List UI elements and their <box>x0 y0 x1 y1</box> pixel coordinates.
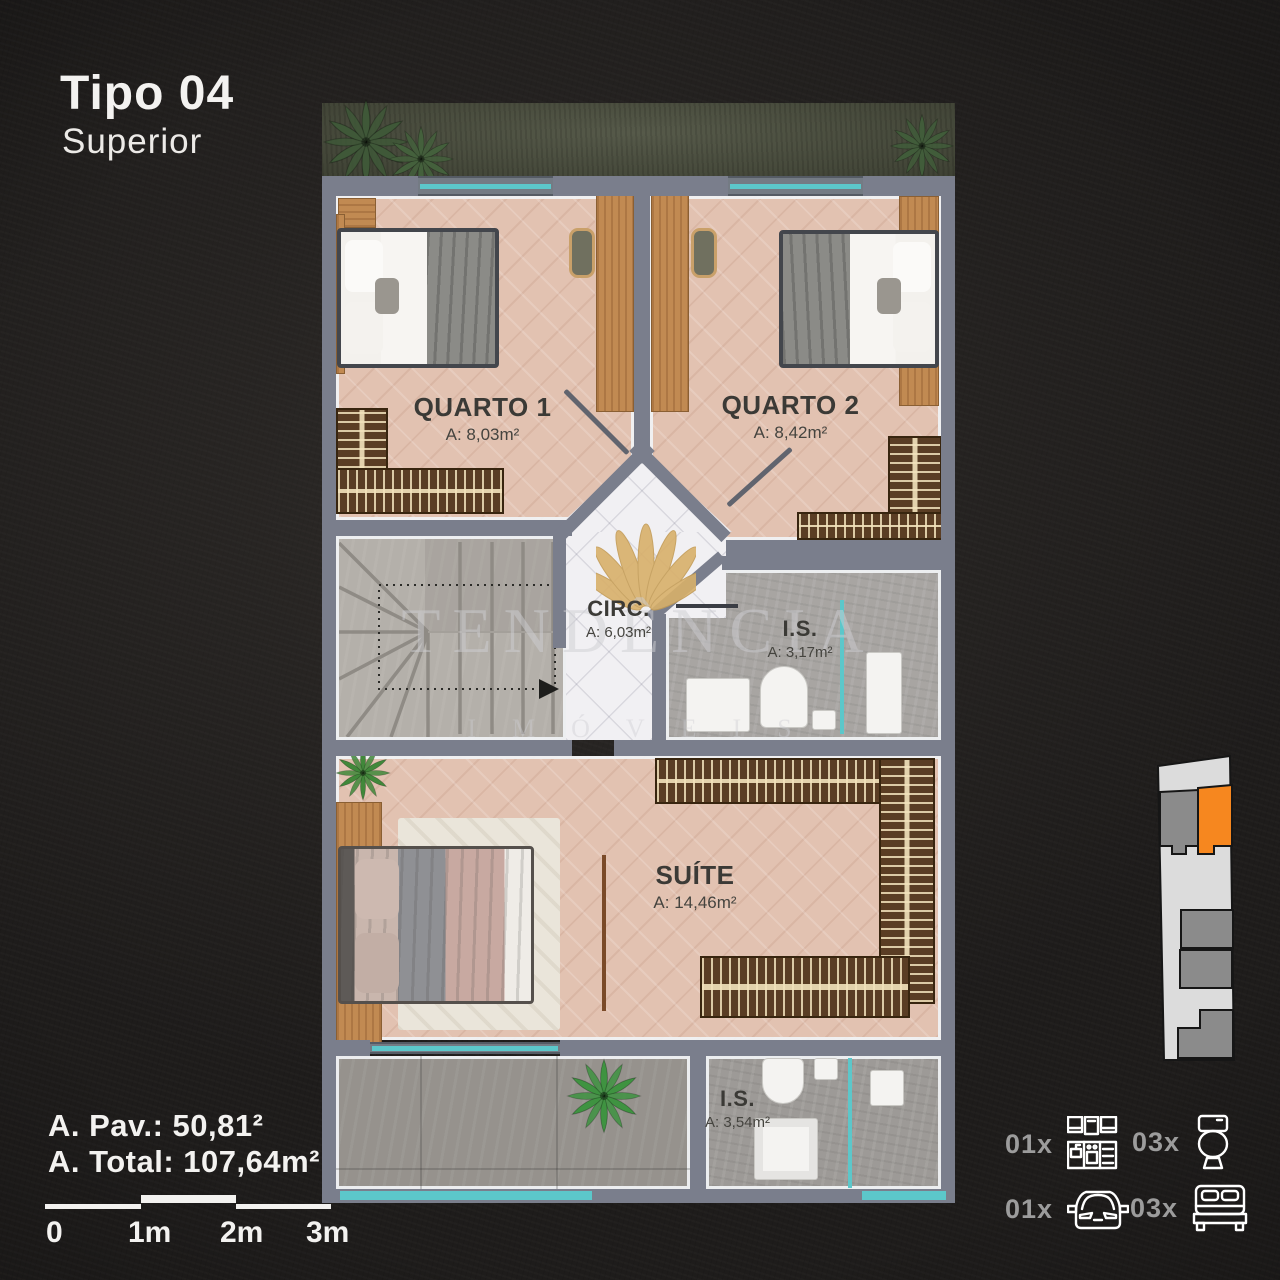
key-plan-unit <box>1160 790 1198 854</box>
room-label-suite: SUÍTE A: 14,46m² <box>620 860 770 913</box>
scale-label-1m: 1m <box>128 1216 171 1250</box>
key-plan-highlighted-unit <box>1198 785 1232 854</box>
page-subtitle: Superior <box>62 122 202 162</box>
balcony-tile-joint <box>556 1056 558 1189</box>
pouf-quarto2 <box>691 228 717 278</box>
bed-quarto2 <box>779 230 939 368</box>
room-name: I.S. <box>675 1086 800 1112</box>
legend-item-kitchen: 01x <box>1005 1116 1119 1172</box>
legend-item-car: 01x <box>1005 1186 1129 1232</box>
room-label-is-suite: I.S. A: 3,54m² <box>675 1086 800 1131</box>
balcony-glass-rail <box>340 1191 592 1200</box>
legend-count: 01x <box>1005 1194 1053 1225</box>
wardrobe-suite-south <box>700 956 910 1018</box>
legend-count: 01x <box>1005 1129 1053 1160</box>
curtain-track-suite <box>602 855 606 1011</box>
legend-item-toilet: 03x <box>1132 1114 1232 1170</box>
balcony-tile-joint <box>420 1056 422 1189</box>
cabinet-is-suite <box>814 1058 838 1080</box>
room-label-quarto2: QUARTO 2 A: 8,42m² <box>688 390 893 443</box>
scale-label-2m: 2m <box>220 1216 263 1250</box>
key-plan-unit <box>1180 950 1232 988</box>
room-area: A: 14,46m² <box>620 893 770 913</box>
window-suite <box>370 1042 560 1054</box>
window-quarto2 <box>728 176 863 196</box>
wall-is-suite-north <box>706 1040 955 1056</box>
legend-count: 03x <box>1130 1193 1178 1224</box>
legend-item-bed: 03x <box>1130 1184 1248 1232</box>
bed-suite <box>338 846 534 1004</box>
wall-quarto1-south <box>322 520 572 536</box>
room-label-is-superior: I.S. A: 3,17m² <box>740 616 860 661</box>
page-title: Tipo 04 <box>60 66 234 121</box>
room-name: CIRC. <box>556 596 681 622</box>
wall-center-column <box>634 192 650 450</box>
toilet-icon <box>1194 1114 1232 1170</box>
car-icon <box>1067 1186 1129 1232</box>
scale-label-3m: 3m <box>306 1216 349 1250</box>
room-label-circ: CIRC. A: 6,03m² <box>556 596 681 641</box>
wardrobe-quarto1 <box>336 468 504 514</box>
wall-suite-south-b <box>560 1040 706 1056</box>
room-name: QUARTO 1 <box>380 392 585 423</box>
closet-quarto2 <box>651 194 689 412</box>
room-name: SUÍTE <box>620 860 770 891</box>
scale-label-0: 0 <box>46 1216 63 1250</box>
shower-is-suite <box>870 1070 904 1106</box>
room-name: I.S. <box>740 616 860 642</box>
plant-icon <box>886 110 958 182</box>
wardrobe-quarto2 <box>797 512 945 540</box>
pavement-area-text: A. Pav.: 50,81² <box>48 1108 263 1144</box>
shower-glass-is-suite <box>848 1058 852 1188</box>
wall-quarto2-south <box>726 540 955 556</box>
wardrobe-suite-north <box>655 758 907 804</box>
room-area: A: 8,42m² <box>688 423 893 443</box>
bed-icon <box>1192 1184 1248 1232</box>
floor-plan-poster: Tipo 04 Superior <box>0 0 1280 1280</box>
room-area: A: 6,03m² <box>556 624 681 641</box>
room-area: A: 3,17m² <box>740 644 860 661</box>
room-area: A: 3,54m² <box>675 1114 800 1131</box>
window-is-suite <box>862 1191 946 1200</box>
pouf-quarto1 <box>569 228 595 278</box>
bed-quarto1 <box>337 228 499 368</box>
scale-segment <box>45 1204 141 1209</box>
key-plan <box>1148 752 1242 1066</box>
balcony-tile-joint <box>336 1168 690 1170</box>
total-area-text: A. Total: 107,64m² <box>48 1144 320 1180</box>
closet-quarto1 <box>596 194 634 412</box>
watermark-segment: IMÓVEIS <box>322 714 955 744</box>
wardrobe-quarto2-side <box>888 436 942 520</box>
window-quarto1 <box>418 176 553 196</box>
room-label-quarto1: QUARTO 1 A: 8,03m² <box>380 392 585 445</box>
wall-suite-south-a <box>322 1040 370 1056</box>
key-plan-unit <box>1181 910 1233 948</box>
scale-segment <box>141 1195 236 1203</box>
wall-is-superior-north <box>722 556 941 570</box>
plant-icon <box>562 1054 646 1138</box>
kitchen-icon <box>1067 1116 1119 1172</box>
legend-count: 03x <box>1132 1127 1180 1158</box>
scale-segment <box>236 1204 331 1209</box>
room-area: A: 8,03m² <box>380 425 585 445</box>
room-name: QUARTO 2 <box>688 390 893 421</box>
